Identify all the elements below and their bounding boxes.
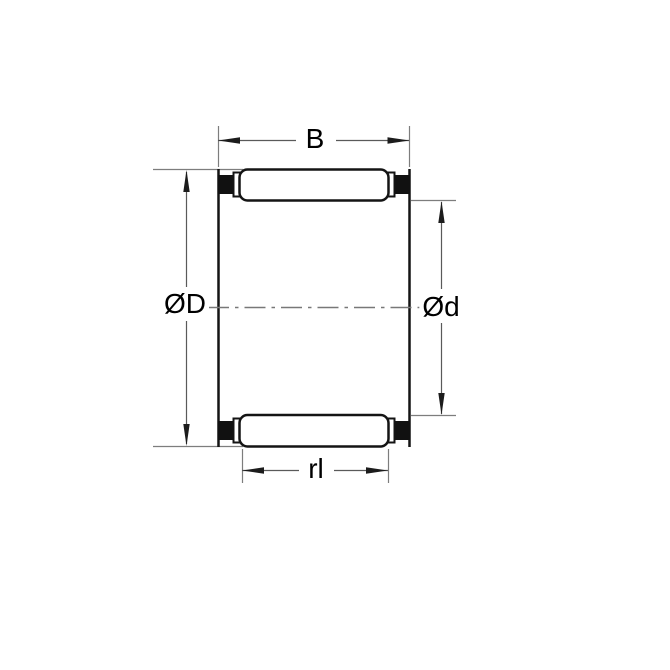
label-inner-diameter: Ød (419, 293, 462, 321)
cage-block-bottom-left (218, 421, 234, 440)
label-outer-diameter: ØD (161, 290, 209, 318)
arrowhead-b-left (218, 137, 240, 143)
arrowhead-rl-left (242, 467, 264, 473)
arrowhead-od-up (183, 170, 189, 192)
label-width-b: B (303, 125, 328, 153)
arrowhead-id-up (438, 201, 444, 223)
top-roller (240, 170, 389, 201)
drawing-canvas (0, 0, 670, 670)
arrowhead-b-right (388, 137, 410, 143)
label-roller-length: rl (305, 455, 327, 483)
bottom-roller (240, 415, 389, 447)
arrowhead-id-down (438, 393, 444, 415)
arrowhead-od-down (183, 424, 189, 446)
cage-block-top-left (218, 175, 234, 194)
arrowhead-rl-right (366, 467, 388, 473)
cage-block-top-right (394, 175, 410, 194)
bearing-technical-drawing: B ØD Ød rl (0, 0, 670, 670)
cage-block-bottom-right (394, 421, 410, 440)
